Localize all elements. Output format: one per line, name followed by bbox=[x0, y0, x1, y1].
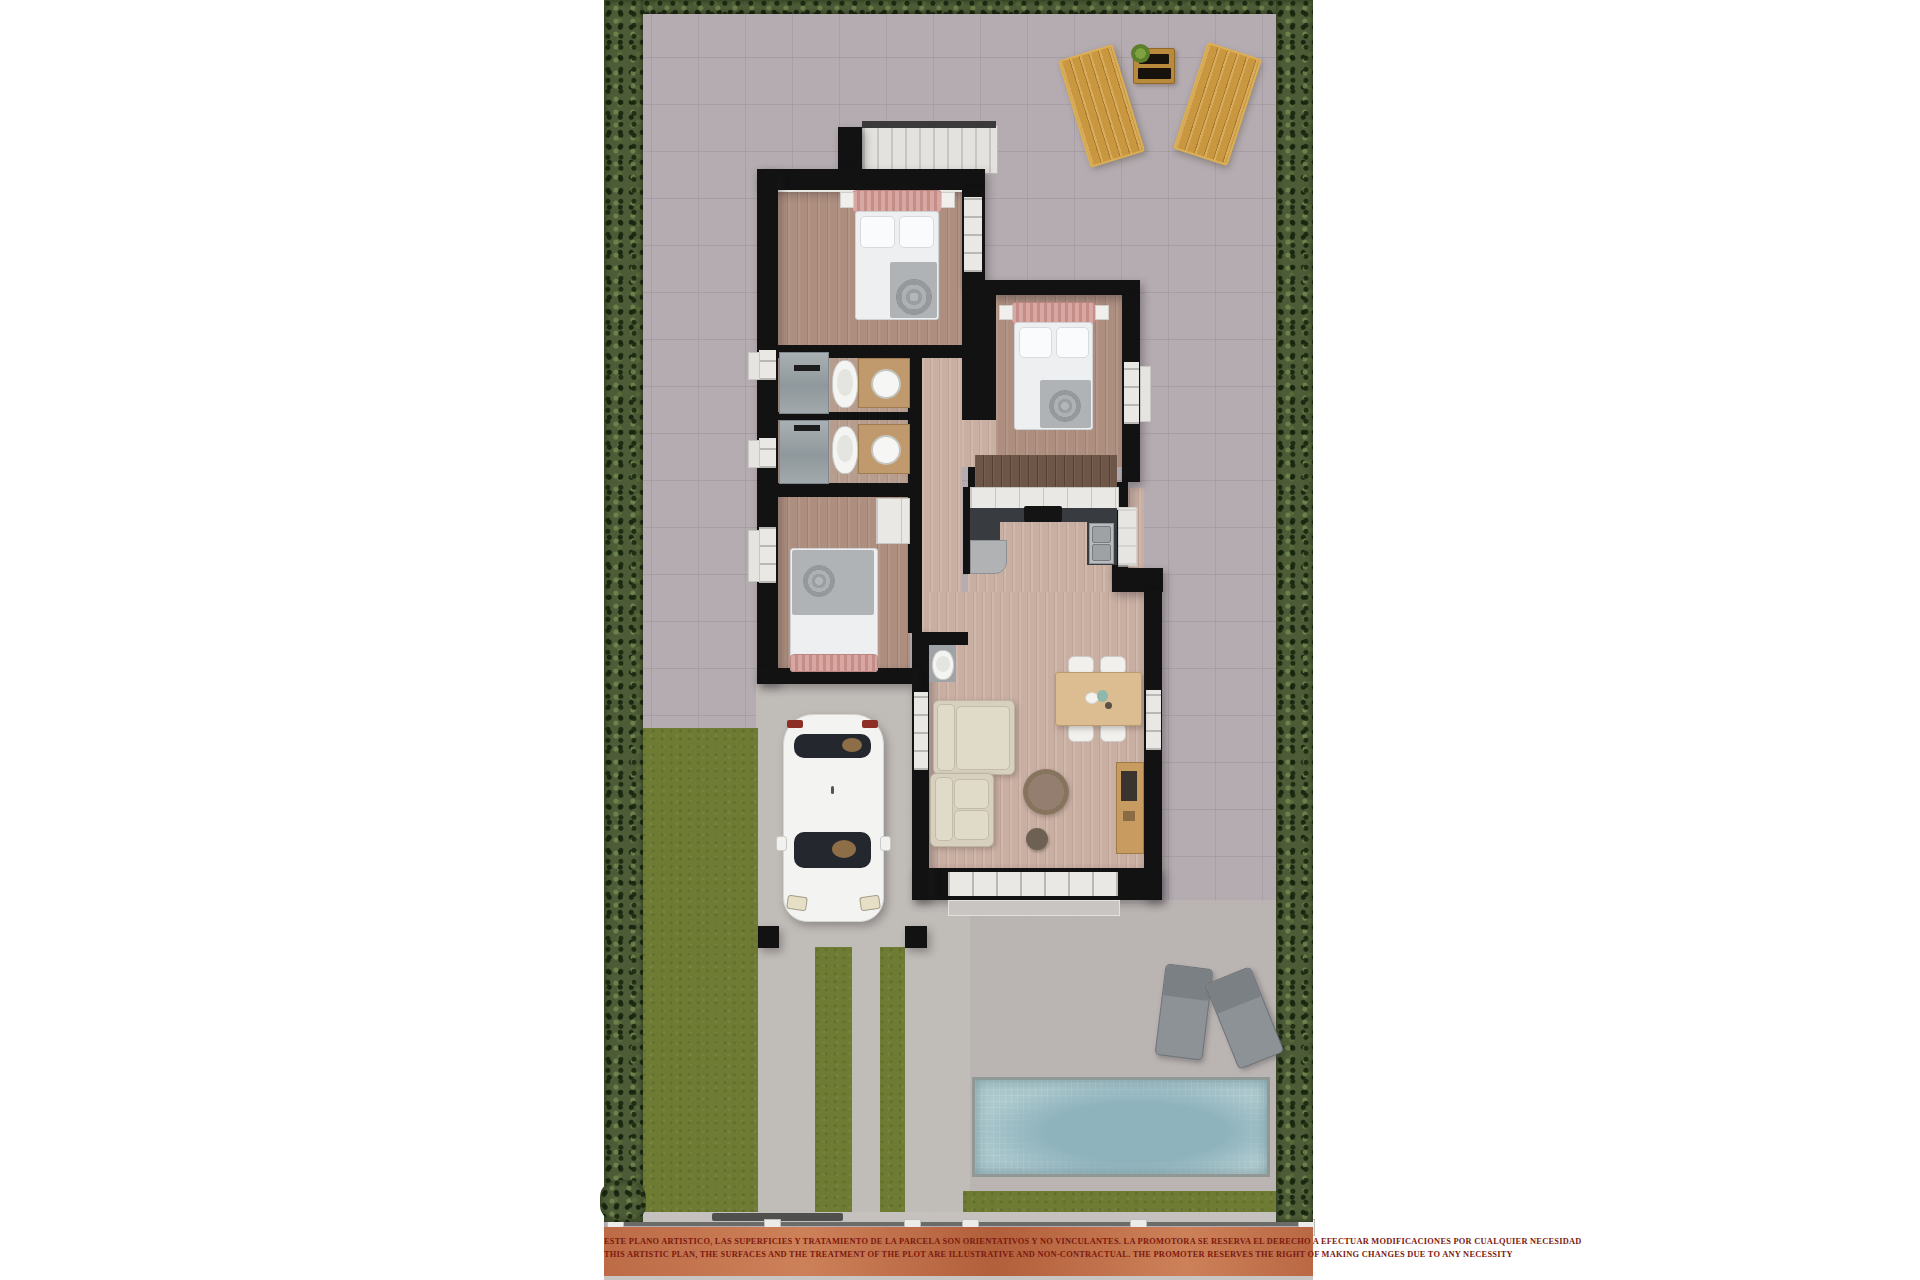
plot-pavement: ESTE PLANO ARTISTICO, LAS SUPERFICIES Y … bbox=[604, 0, 1313, 1280]
faucet-bar bbox=[794, 365, 820, 371]
sliding-door-living bbox=[948, 872, 1118, 896]
wall-wc-top bbox=[929, 632, 968, 645]
round-rug bbox=[1023, 769, 1069, 815]
car-windshield bbox=[794, 832, 871, 868]
carport-post-left bbox=[758, 926, 779, 948]
nightstand bbox=[840, 192, 854, 208]
car-taillight bbox=[862, 720, 878, 728]
decor-item bbox=[1123, 811, 1135, 821]
bed-headboard bbox=[852, 190, 942, 213]
lawn-strip-2 bbox=[880, 947, 905, 1212]
floor-plan-render: ESTE PLANO ARTISTICO, LAS SUPERFICIES Y … bbox=[0, 0, 1920, 1280]
kitchen-appliance bbox=[970, 540, 1007, 574]
wc-toilet bbox=[932, 650, 954, 680]
window-living-left bbox=[914, 692, 928, 770]
sofa-cushion bbox=[954, 779, 989, 809]
pillow bbox=[1019, 327, 1052, 358]
staircase-wall bbox=[838, 127, 862, 175]
front-fence bbox=[608, 1222, 1311, 1226]
lawn-strip-1 bbox=[815, 947, 852, 1212]
pillow bbox=[899, 216, 934, 248]
window-bedroom3-left bbox=[759, 527, 776, 583]
bed-headboard bbox=[1011, 302, 1096, 324]
kitchen-counter-left bbox=[970, 522, 1000, 540]
kitchen-sink bbox=[1089, 523, 1114, 564]
washbasin-1 bbox=[871, 369, 901, 399]
car-mirror bbox=[880, 836, 891, 851]
shower-1 bbox=[779, 352, 829, 414]
bed-footboard bbox=[790, 654, 878, 672]
window-sill bbox=[748, 530, 760, 582]
lawn-main bbox=[642, 728, 758, 1212]
toilet-lid bbox=[837, 369, 854, 396]
tv-screen bbox=[1121, 771, 1137, 801]
car-antenna bbox=[831, 786, 834, 794]
sofa-cushion bbox=[935, 777, 953, 841]
window-bedroom1-right bbox=[964, 197, 982, 272]
wall-hall bbox=[908, 358, 922, 633]
pouf bbox=[1026, 828, 1048, 850]
table-glass-shelf bbox=[1138, 68, 1171, 79]
pillow bbox=[860, 216, 895, 248]
sink-basin bbox=[1092, 526, 1111, 543]
table-cup bbox=[1105, 702, 1112, 709]
faucet-bar bbox=[794, 425, 820, 431]
car-headlight bbox=[786, 895, 808, 912]
window-sill bbox=[1140, 366, 1151, 422]
car-mirror bbox=[776, 836, 787, 851]
wall-corner-kitchen bbox=[1112, 568, 1163, 592]
kitchen-window-ledge bbox=[1118, 507, 1138, 567]
toilet-1 bbox=[832, 360, 858, 408]
sofa-cushion bbox=[937, 704, 955, 771]
disclaimer-line-2: THIS ARTISTIC PLAN, THE SURFACES AND THE… bbox=[604, 1249, 1313, 1262]
bedroom3-closet bbox=[876, 498, 910, 544]
leaf-reflection bbox=[842, 738, 862, 752]
sofa-cushion bbox=[956, 706, 1010, 770]
carport-post-right bbox=[905, 926, 927, 948]
towel-swirl bbox=[896, 279, 932, 315]
wall-bed1-bed2 bbox=[962, 284, 996, 420]
disclaimer-banner: ESTE PLANO ARTISTICO, LAS SUPERFICIES Y … bbox=[604, 1227, 1313, 1276]
hedge-top bbox=[604, 0, 1313, 14]
window-living-right bbox=[1146, 690, 1161, 750]
window-sill bbox=[748, 440, 760, 468]
lounger-backrest bbox=[1163, 965, 1212, 1001]
wall-bath-bed3-divider bbox=[770, 483, 912, 497]
hedge-left bbox=[604, 0, 643, 1222]
towel-swirl bbox=[803, 565, 835, 597]
nightstand bbox=[1095, 305, 1109, 320]
disclaimer-line-1: ESTE PLANO ARTISTICO, LAS SUPERFICIES Y … bbox=[604, 1236, 1313, 1249]
nightstand bbox=[941, 192, 955, 208]
cooktop bbox=[1024, 506, 1062, 522]
nightstand bbox=[999, 305, 1013, 320]
tv-sideboard bbox=[1116, 762, 1144, 854]
toilet-2 bbox=[832, 426, 858, 474]
bottom-curb bbox=[604, 1276, 1313, 1280]
sofa-cushion bbox=[954, 810, 989, 840]
pillow bbox=[1056, 327, 1089, 358]
wall-left bbox=[757, 169, 778, 684]
swimming-pool bbox=[972, 1077, 1270, 1177]
towel-swirl bbox=[1049, 390, 1081, 422]
wooden-sun-lounger bbox=[1173, 42, 1262, 166]
window-bedroom2-right bbox=[1124, 362, 1139, 424]
car-taillight bbox=[787, 720, 803, 728]
toilet-lid bbox=[837, 435, 854, 462]
wall-step bbox=[983, 280, 1140, 295]
window-bathroom1-left bbox=[759, 350, 776, 380]
sink-basin bbox=[1092, 544, 1111, 561]
hedge-corner-bush bbox=[600, 1180, 646, 1222]
washbasin-2 bbox=[871, 435, 901, 465]
potted-plant bbox=[1131, 44, 1150, 63]
wall-top bbox=[757, 169, 985, 190]
staircase-top-edge bbox=[862, 121, 996, 128]
car-rear-window bbox=[794, 734, 871, 758]
leaf-reflection bbox=[832, 840, 856, 858]
car-headlight bbox=[859, 895, 881, 912]
wall-kitchen-left bbox=[963, 487, 970, 574]
exterior-staircase bbox=[862, 125, 998, 174]
hedge-right bbox=[1276, 0, 1313, 1222]
terrace-step bbox=[948, 900, 1120, 916]
table-plant bbox=[1097, 690, 1108, 702]
toilet-lid bbox=[936, 656, 950, 672]
window-bathroom2-left bbox=[759, 438, 776, 468]
bedroom2-wardrobe bbox=[975, 455, 1117, 487]
window-sill bbox=[748, 352, 760, 380]
